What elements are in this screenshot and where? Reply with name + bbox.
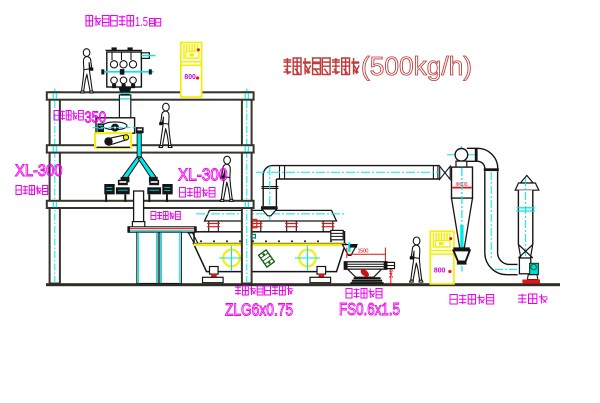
svg-text:1.5: 1.5 [135,15,148,29]
svg-text:800: 800 [434,266,446,275]
svg-text:FS0.6x1.5: FS0.6x1.5 [339,299,400,319]
svg-text:(500kg/h): (500kg/h) [361,53,472,81]
svg-text:800: 800 [184,72,196,81]
svg-text:ZLG6x0.75: ZLG6x0.75 [225,300,293,320]
svg-text:340: 340 [389,269,395,279]
svg-text:1500: 1500 [358,249,369,255]
svg-text:350: 350 [85,110,107,127]
svg-text:XL-300: XL-300 [15,161,63,180]
svg-text:XL-300: XL-300 [178,165,228,185]
